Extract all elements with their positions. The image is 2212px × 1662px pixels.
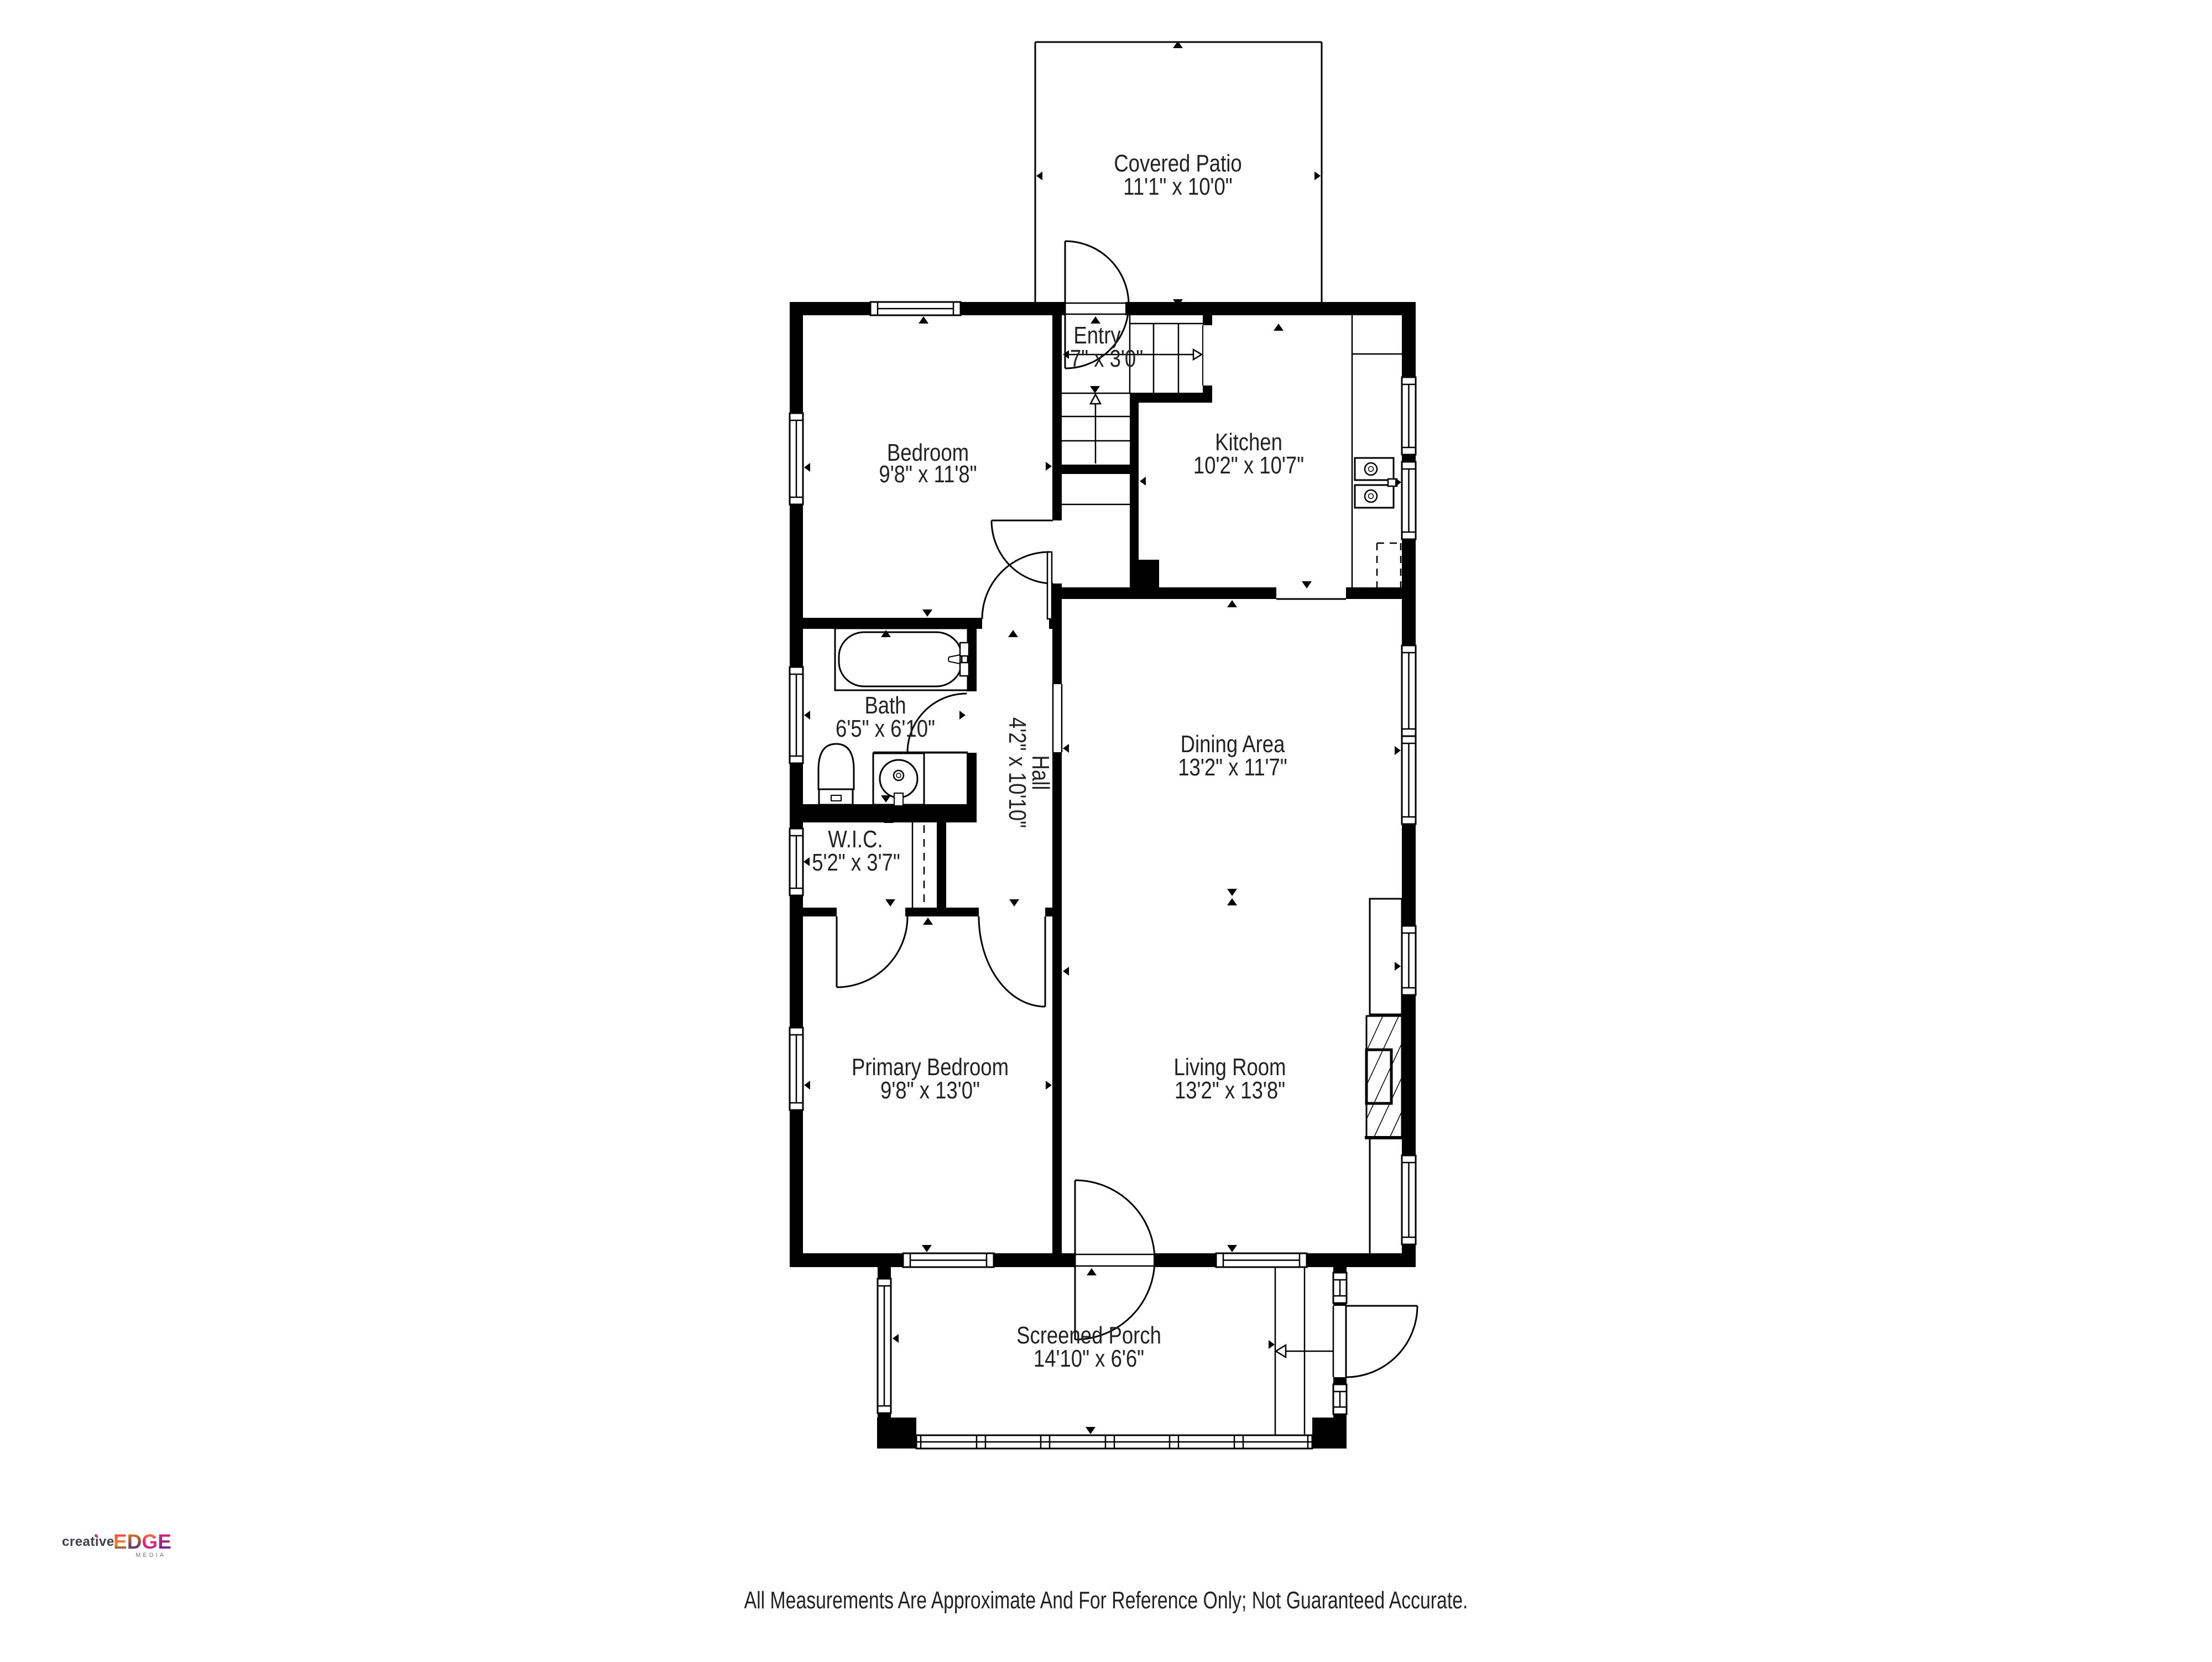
- svg-text:9'8" x 13'0": 9'8" x 13'0": [880, 1076, 980, 1104]
- svg-text:13'2" x 13'8": 13'2" x 13'8": [1175, 1076, 1285, 1104]
- svg-text:MEDIA: MEDIA: [135, 1552, 166, 1559]
- svg-text:6'5" x 6'10": 6'5" x 6'10": [836, 715, 935, 742]
- svg-text:11'1" x 10'0": 11'1" x 10'0": [1123, 173, 1233, 200]
- svg-text:All Measurements Are Approxima: All Measurements Are Approximate And For…: [744, 1587, 1468, 1614]
- svg-text:9'8" x 11'8": 9'8" x 11'8": [879, 460, 977, 488]
- svg-text:13'2" x 11'7": 13'2" x 11'7": [1178, 753, 1287, 781]
- svg-text:creative: creative: [62, 1534, 114, 1549]
- svg-text:5'2" x 3'7": 5'2" x 3'7": [812, 848, 900, 876]
- svg-text:EDGE: EDGE: [113, 1530, 171, 1553]
- svg-text:4'2" x 10'10": 4'2" x 10'10": [1004, 717, 1031, 828]
- svg-text:7" x 3'0": 7" x 3'0": [1070, 345, 1143, 372]
- svg-text:10'2" x 10'7": 10'2" x 10'7": [1193, 451, 1304, 479]
- svg-text:14'10" x 6'6": 14'10" x 6'6": [1034, 1345, 1144, 1372]
